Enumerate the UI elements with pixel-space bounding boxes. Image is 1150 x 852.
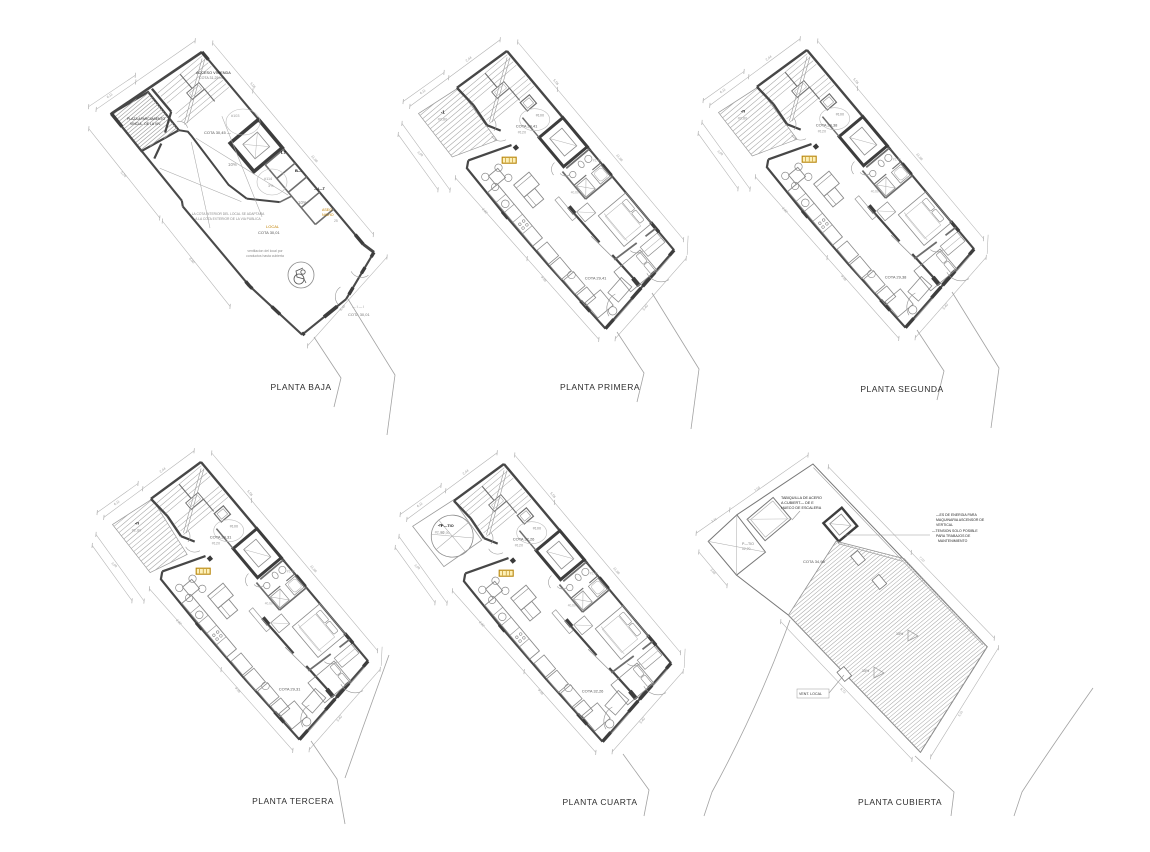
svg-text:COTA 32,26: COTA 32,26 <box>582 689 604 694</box>
svg-text:B—: B— <box>295 168 302 173</box>
svg-text:40,60: 40,60 <box>568 604 576 608</box>
svg-text:NICHO: NICHO <box>322 213 334 217</box>
svg-text:LA COTA INTERIOR DEL LOCAL SE: LA COTA INTERIOR DEL LOCAL SE ADAPTARA <box>192 212 265 216</box>
svg-text:COTA 29,41: COTA 29,41 <box>585 276 607 281</box>
svg-text:40,60: 40,60 <box>571 191 579 195</box>
svg-text:25: 25 <box>334 219 338 223</box>
svg-text:MANTENIMIENTO: MANTENIMIENTO <box>938 539 968 543</box>
svg-text:#120: #120 <box>212 542 220 546</box>
svg-text:COTA 30,45 —: COTA 30,45 — <box>204 130 231 135</box>
svg-text:MAQUINARIA ASCENSOR DE: MAQUINARIA ASCENSOR DE <box>936 518 985 522</box>
svg-text:COTA 29,31: COTA 29,31 <box>210 535 232 540</box>
svg-text:—TENSION SOLO POSIBLE: —TENSION SOLO POSIBLE <box>932 529 978 533</box>
svg-text:#1,40: #1,40 <box>593 159 601 163</box>
svg-text:#2,80: #2,80 <box>438 118 448 122</box>
svg-text:HUECO DE ESCALERA: HUECO DE ESCALERA <box>781 506 822 510</box>
svg-text:#103: #103 <box>231 114 239 118</box>
svg-text:VERTICAL: VERTICAL <box>936 523 953 527</box>
svg-text:PLANTA BAJA: PLANTA BAJA <box>270 382 331 392</box>
svg-text:10%: 10% <box>298 200 307 205</box>
svg-text:ACCESO VIVIENDA: ACCESO VIVIENDA <box>196 71 231 75</box>
svg-text:ASEO: ASEO <box>322 208 332 212</box>
svg-text:40,60: 40,60 <box>871 190 879 194</box>
svg-text:#2,80: #2,80 <box>132 529 142 533</box>
svg-text:ventilacion del local por: ventilacion del local por <box>247 249 283 253</box>
svg-text:-n: -n <box>741 109 746 114</box>
svg-text:#1,40: #1,40 <box>590 572 598 576</box>
svg-text:A LA COTA EXTERIOR DE LA VIA P: A LA COTA EXTERIOR DE LA VIA PUBLICA <box>195 217 261 221</box>
svg-text:A CUBIERT— DE E: A CUBIERT— DE E <box>781 501 814 505</box>
svg-text:COTA 29,38: COTA 29,38 <box>885 275 907 280</box>
svg-text:PARA TRABAJOS DE: PARA TRABAJOS DE <box>936 534 971 538</box>
svg-text:#120: #120 <box>518 131 526 135</box>
svg-text:#100: #100 <box>836 113 844 117</box>
svg-text:TABIQUILLA DE ACERO: TABIQUILLA DE ACERO <box>781 496 822 500</box>
svg-text:PLANTA PRIMERA: PLANTA PRIMERA <box>560 382 640 392</box>
svg-text:COTA 29,38: COTA 29,38 <box>816 123 838 128</box>
svg-text:VENT. LOCAL: VENT. LOCAL <box>799 692 822 696</box>
svg-text:VINCUL. DE LA VIV.: VINCUL. DE LA VIV. <box>130 122 161 126</box>
svg-text:COTA 30,01: COTA 30,01 <box>258 230 280 235</box>
svg-text:15%: 15% <box>896 632 904 636</box>
svg-text:#100: #100 <box>536 114 544 118</box>
svg-text:LOCAL: LOCAL <box>266 224 280 229</box>
svg-text:COTA 29,31: COTA 29,31 <box>279 687 301 692</box>
svg-text:#1,40: #1,40 <box>287 570 295 574</box>
svg-text:I.T: I.T <box>281 150 286 155</box>
svg-text:#2,20: #2,20 <box>742 547 751 551</box>
svg-text:#2,00: #2,00 <box>441 531 450 535</box>
svg-text:COTA 31,25 m: COTA 31,25 m <box>199 76 223 80</box>
svg-text:PLANTA SEGUNDA: PLANTA SEGUNDA <box>860 384 943 394</box>
svg-text:#2,80: #2,80 <box>738 117 748 121</box>
svg-text:#114: #114 <box>264 177 272 181</box>
svg-text:-n: -n <box>135 521 140 526</box>
svg-text:40,60: 40,60 <box>265 602 273 606</box>
svg-text:#100: #100 <box>230 525 238 529</box>
svg-text:#120: #120 <box>515 544 523 548</box>
svg-text:15%: 15% <box>862 669 870 673</box>
svg-text:COTA 32,26: COTA 32,26 <box>513 537 535 542</box>
svg-text:10%: 10% <box>228 162 237 167</box>
svg-text:#100: #100 <box>533 527 541 531</box>
svg-text:COTA 29,41: COTA 29,41 <box>516 124 538 129</box>
svg-text:P—TIO: P—TIO <box>441 524 454 528</box>
svg-text:3%: 3% <box>268 184 274 188</box>
svg-text:—I—T: —I—T <box>314 187 326 191</box>
svg-text:-1: -1 <box>441 110 446 115</box>
svg-text:—ES DE ENERGIA PARA: —ES DE ENERGIA PARA <box>936 513 977 517</box>
svg-text:PLANTA CUBIERTA: PLANTA CUBIERTA <box>858 797 942 807</box>
svg-text:conductos hasta cubierta: conductos hasta cubierta <box>246 254 284 258</box>
svg-text:COTA 34,98: COTA 34,98 <box>803 559 825 564</box>
svg-text:PLANTA TERCERA: PLANTA TERCERA <box>252 796 334 806</box>
svg-text:#1,40: #1,40 <box>893 158 901 162</box>
svg-text:PLANTA CUARTA: PLANTA CUARTA <box>563 797 638 807</box>
svg-text:PLAZA APARCAMIENTO: PLAZA APARCAMIENTO <box>127 117 165 121</box>
svg-text:COTA 30,01: COTA 30,01 <box>348 312 370 317</box>
svg-text:P—TIO: P—TIO <box>742 542 754 546</box>
svg-text:#120: #120 <box>818 130 826 134</box>
